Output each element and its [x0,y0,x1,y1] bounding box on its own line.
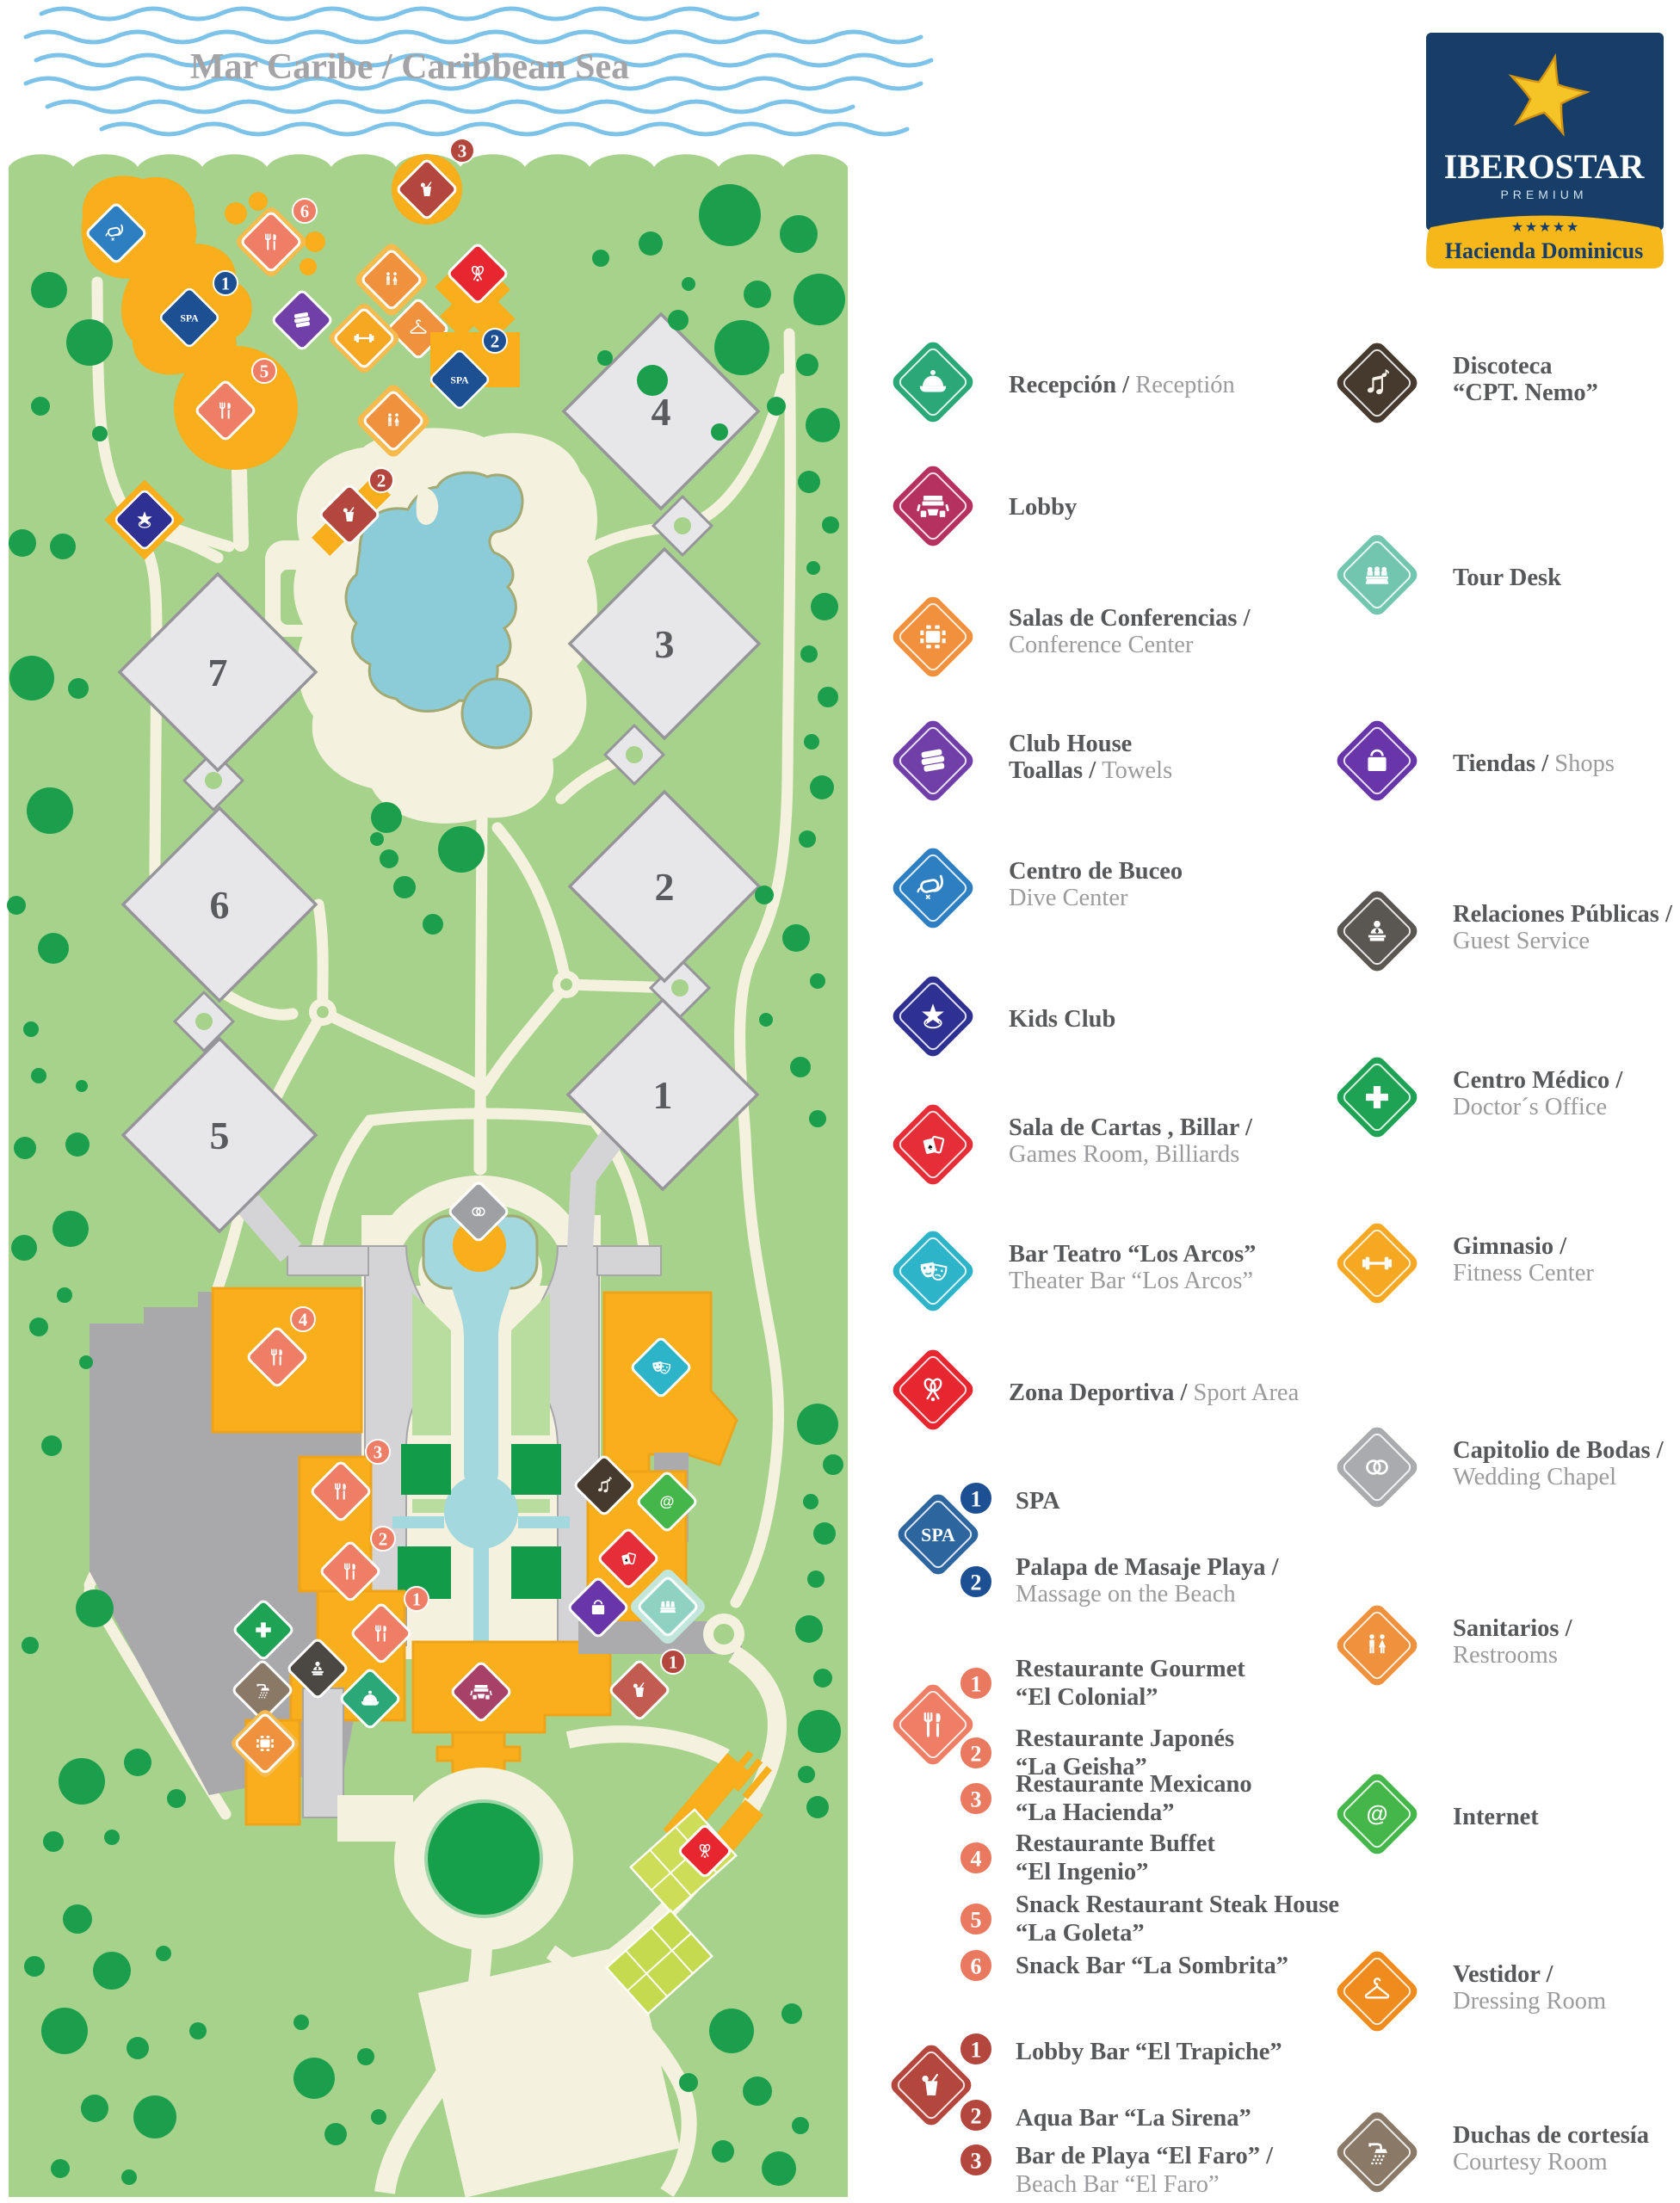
svg-text:IBEROSTAR: IBEROSTAR [1444,147,1646,186]
svg-text:“El Colonial”: “El Colonial” [1016,1684,1158,1711]
svg-text:Snack Restaurant Steak House: Snack Restaurant Steak House [1016,1891,1339,1918]
svg-text:★: ★ [1553,220,1565,235]
svg-text:Courtesy Room: Courtesy Room [1453,2149,1608,2175]
svg-text:2: 2 [377,471,386,491]
svg-text:Internet: Internet [1453,1804,1539,1830]
svg-text:Fitness Center: Fitness Center [1453,1260,1594,1287]
svg-text:Games Room, Billiards: Games Room, Billiards [1009,1141,1239,1168]
svg-text:4: 4 [971,1846,982,1871]
svg-text:Dressing Room: Dressing Room [1453,1988,1606,2015]
svg-text:6: 6 [300,201,310,222]
svg-text:7: 7 [208,651,228,694]
svg-text:1: 1 [971,1671,982,1696]
svg-text:Snack Bar “La Sombrita”: Snack Bar “La Sombrita” [1016,1953,1288,1979]
svg-text:“El Ingenio”: “El Ingenio” [1016,1859,1148,1885]
svg-text:Hacienda Dominicus: Hacienda Dominicus [1445,238,1643,263]
svg-text:1: 1 [653,1073,673,1117]
svg-text:1: 1 [971,1486,982,1511]
svg-text:Duchas de cortesía: Duchas de cortesía [1453,2122,1649,2149]
svg-text:Sanitarios /: Sanitarios / [1453,1615,1573,1642]
svg-text:Restaurante Gourmet: Restaurante Gourmet [1016,1656,1245,1682]
svg-text:5: 5 [210,1114,230,1157]
svg-text:Zona Deportiva / Sport Area: Zona Deportiva / Sport Area [1009,1379,1300,1406]
svg-text:★: ★ [1525,220,1537,235]
svg-text:Tiendas / Shops: Tiendas / Shops [1453,750,1615,777]
svg-text:Bar Teatro “Los Arcos”: Bar Teatro “Los Arcos” [1009,1241,1256,1268]
svg-text:PREMIUM: PREMIUM [1500,188,1587,201]
svg-text:Salas de Conferencias /: Salas de Conferencias / [1009,605,1251,632]
svg-text:5: 5 [971,1907,982,1932]
svg-text:2: 2 [655,865,675,909]
svg-text:2: 2 [971,1570,982,1595]
svg-text:Restaurante Buffet: Restaurante Buffet [1016,1830,1215,1857]
svg-text:★: ★ [1511,220,1523,235]
svg-text:Restaurante Japonés: Restaurante Japonés [1016,1725,1234,1752]
svg-text:3: 3 [971,1786,982,1811]
svg-text:3: 3 [971,2148,982,2173]
svg-text:Club House: Club House [1009,731,1132,757]
svg-text:Dive Center: Dive Center [1009,885,1128,911]
svg-text:Centro de Buceo: Centro de Buceo [1009,858,1183,885]
svg-text:Relaciones Públicas /: Relaciones Públicas / [1453,901,1673,928]
svg-text:2: 2 [971,2103,982,2128]
svg-text:2: 2 [491,331,500,352]
svg-text:Aqua Bar “La Sirena”: Aqua Bar “La Sirena” [1016,2105,1251,2132]
svg-text:4: 4 [652,390,671,434]
svg-text:Bar de Playa “El Faro” /: Bar de Playa “El Faro” / [1016,2143,1274,2169]
svg-text:Gimnasio /: Gimnasio / [1453,1233,1567,1260]
svg-text:1: 1 [971,2037,982,2062]
svg-text:Restaurante Mexicano: Restaurante Mexicano [1016,1771,1252,1798]
svg-text:Theater Bar “Los Arcos”: Theater Bar “Los Arcos” [1009,1268,1253,1294]
svg-text:6: 6 [210,883,230,927]
svg-text:Wedding Chapel: Wedding Chapel [1453,1464,1616,1490]
svg-text:3: 3 [374,1442,383,1463]
svg-text:Recepción / Receptión: Recepción / Receptión [1009,372,1235,398]
svg-text:5: 5 [260,361,269,382]
svg-text:Capitolio de Bodas /: Capitolio de Bodas / [1453,1437,1665,1464]
svg-text:“CPT. Nemo”: “CPT. Nemo” [1453,380,1598,406]
svg-text:★: ★ [1566,220,1578,235]
svg-text:2: 2 [379,1529,388,1550]
svg-text:Sala de Cartas , Billar /: Sala de Cartas , Billar / [1009,1114,1253,1141]
svg-text:Palapa de Masaje Playa /: Palapa de Masaje Playa / [1016,1554,1280,1581]
svg-text:Lobby Bar “El Trapiche”: Lobby Bar “El Trapiche” [1016,2039,1282,2065]
svg-text:1: 1 [669,1652,678,1673]
svg-text:1: 1 [221,274,231,294]
svg-text:4: 4 [299,1310,308,1330]
svg-text:★: ★ [1539,220,1551,235]
svg-text:Lobby: Lobby [1009,494,1077,521]
svg-text:Kids Club: Kids Club [1009,1006,1115,1033]
svg-text:Discoteca: Discoteca [1453,353,1553,380]
svg-text:Massage on the Beach: Massage on the Beach [1016,1581,1236,1608]
svg-text:Restrooms: Restrooms [1453,1642,1558,1669]
svg-text:3: 3 [655,622,675,666]
svg-text:Guest Service: Guest Service [1453,928,1590,954]
svg-text:3: 3 [458,141,467,162]
svg-text:“La Goleta”: “La Goleta” [1016,1920,1145,1947]
svg-text:SPA: SPA [1016,1488,1060,1515]
svg-text:6: 6 [971,1953,982,1978]
svg-text:2: 2 [971,1741,982,1766]
svg-text:Tour Desk: Tour Desk [1453,565,1561,591]
svg-text:Vestidor /: Vestidor / [1453,1961,1553,1988]
svg-text:Beach Bar “El Faro”: Beach Bar “El Faro” [1016,2171,1220,2198]
svg-text:1: 1 [412,1589,422,1610]
svg-text:Conference Center: Conference Center [1009,632,1194,658]
svg-text:Centro Médico /: Centro Médico / [1453,1067,1623,1094]
svg-text:Mar Caribe / Caribbean Sea: Mar Caribe / Caribbean Sea [190,47,629,87]
svg-text:Doctor´s Office: Doctor´s Office [1453,1094,1607,1120]
svg-text:“La Hacienda”: “La Hacienda” [1016,1799,1174,1826]
svg-text:Toallas / Towels: Toallas / Towels [1009,757,1172,784]
